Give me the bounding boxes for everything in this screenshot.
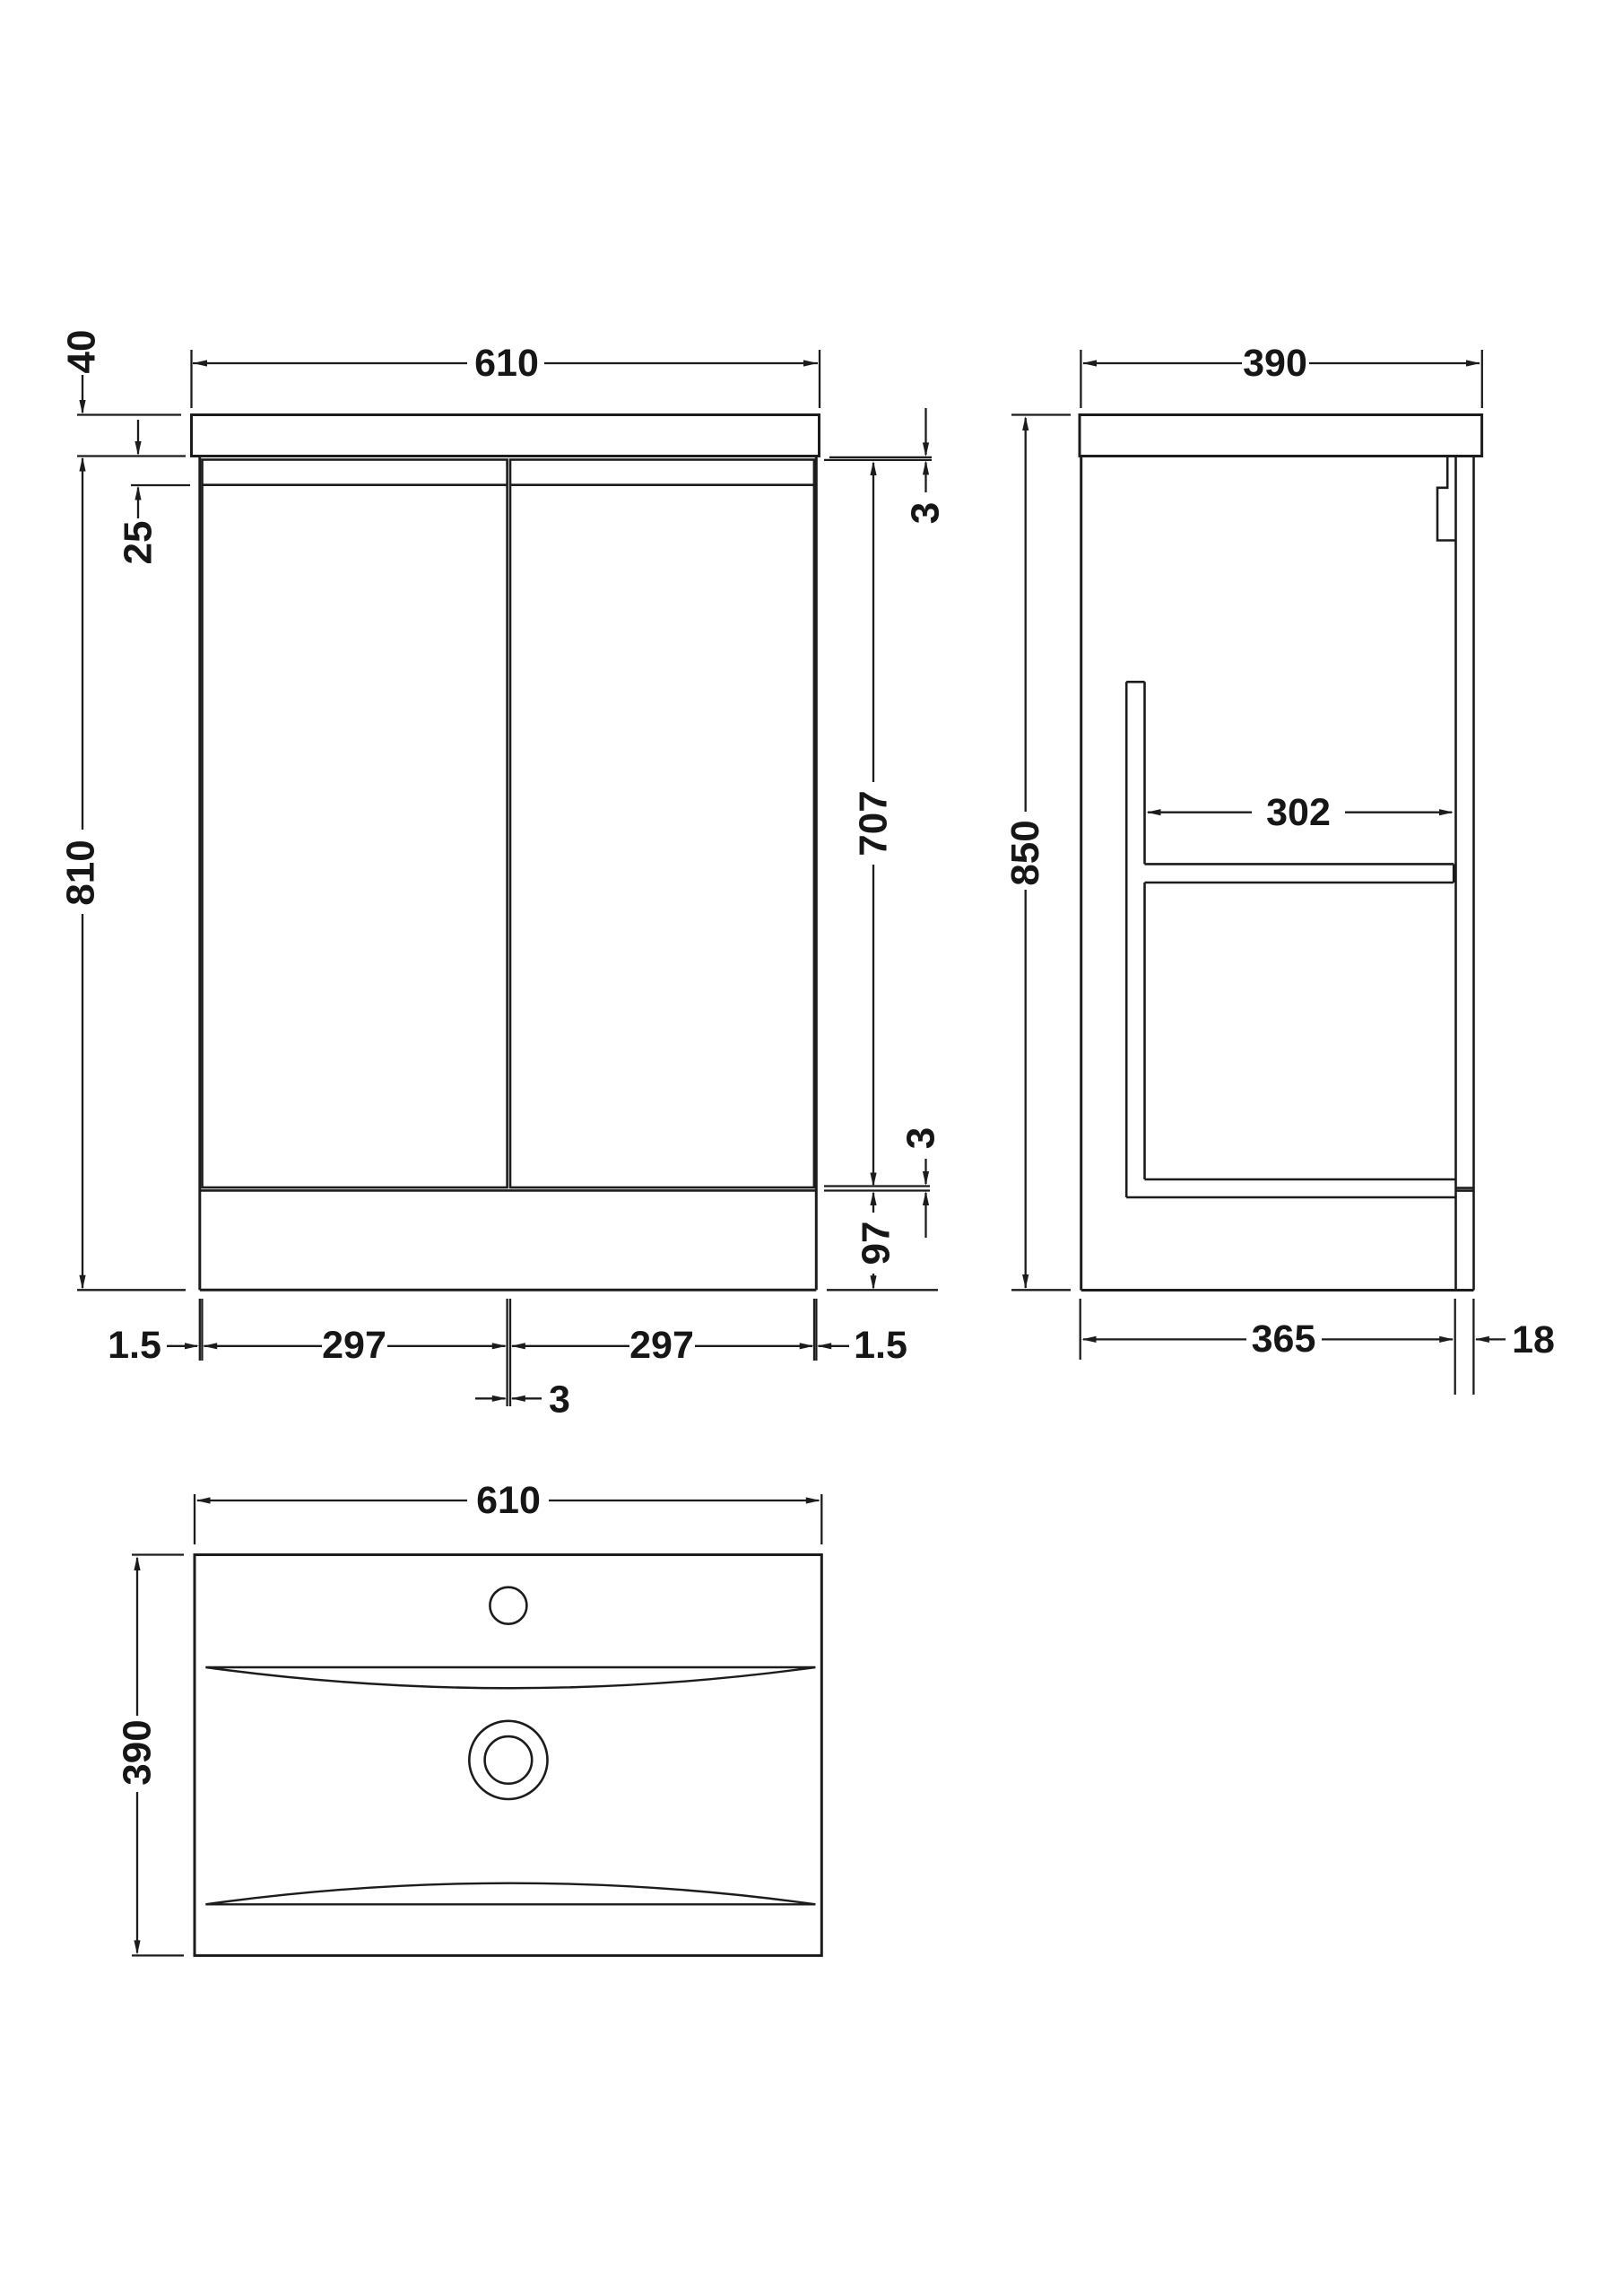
- svg-text:25: 25: [117, 521, 161, 565]
- svg-text:40: 40: [60, 330, 104, 374]
- svg-text:302: 302: [1266, 791, 1331, 834]
- svg-text:610: 610: [474, 342, 539, 385]
- svg-text:297: 297: [322, 1324, 386, 1367]
- svg-text:707: 707: [852, 790, 896, 856]
- svg-text:810: 810: [59, 839, 103, 905]
- svg-text:850: 850: [1003, 820, 1047, 885]
- svg-text:18: 18: [1512, 1318, 1555, 1361]
- svg-text:1.5: 1.5: [108, 1324, 161, 1367]
- svg-text:610: 610: [476, 1479, 541, 1522]
- svg-text:1.5: 1.5: [854, 1324, 907, 1367]
- svg-text:3: 3: [549, 1378, 570, 1422]
- svg-text:390: 390: [116, 1719, 160, 1785]
- svg-text:297: 297: [629, 1324, 694, 1367]
- svg-text:365: 365: [1252, 1318, 1316, 1361]
- svg-text:97: 97: [855, 1222, 898, 1265]
- svg-text:3: 3: [904, 502, 948, 524]
- svg-text:390: 390: [1243, 342, 1307, 385]
- svg-text:3: 3: [899, 1127, 943, 1149]
